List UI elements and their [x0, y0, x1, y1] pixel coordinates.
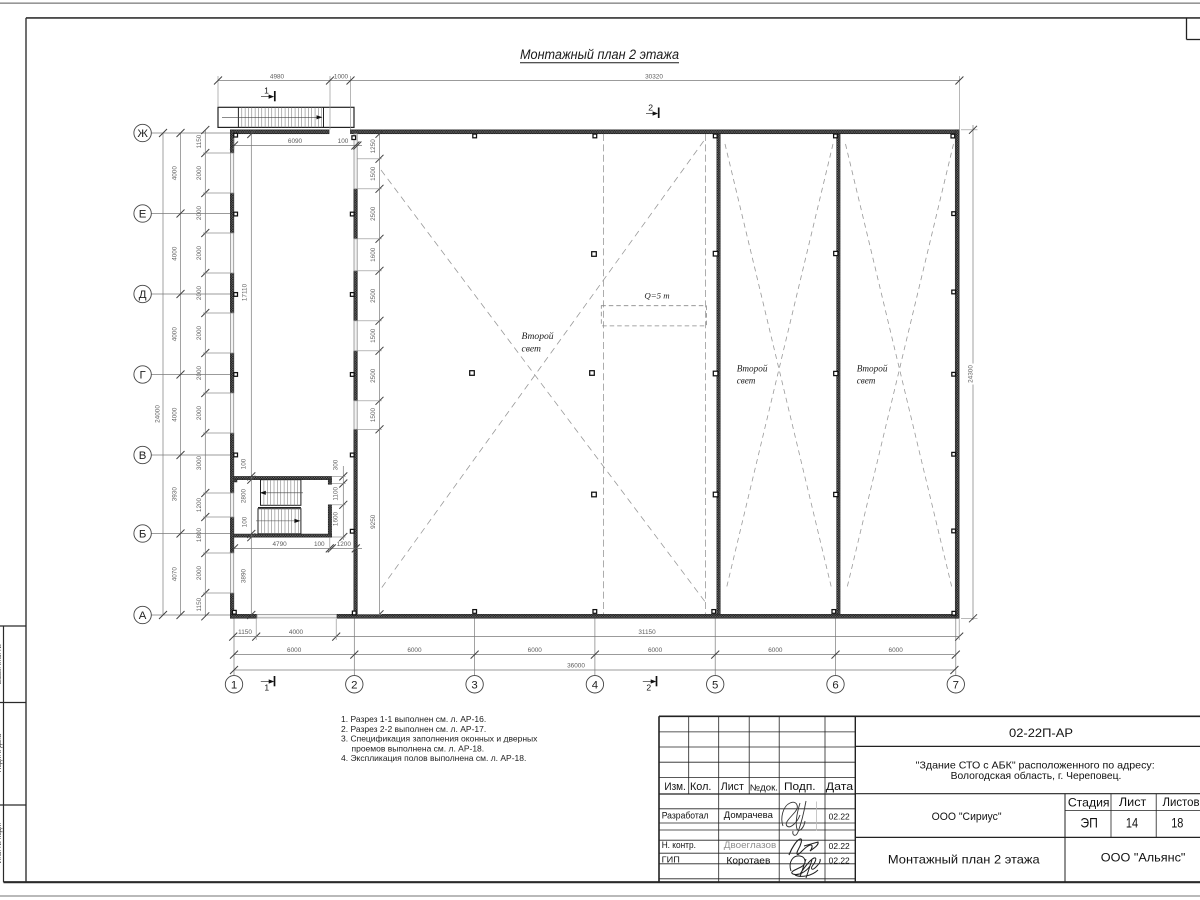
svg-text:3930: 3930	[172, 487, 179, 502]
svg-text:Взам. инв. №: Взам. инв. №	[0, 644, 3, 684]
svg-text:2500: 2500	[370, 288, 377, 303]
svg-text:2000: 2000	[196, 365, 203, 380]
svg-text:100: 100	[241, 458, 248, 469]
svg-text:Вологодская область, г. Черепо: Вологодская область, г. Череповец.	[951, 770, 1122, 782]
svg-text:Е: Е	[139, 209, 147, 221]
svg-text:5: 5	[712, 679, 718, 691]
svg-text:4000: 4000	[172, 407, 179, 422]
svg-text:Лист: Лист	[1119, 795, 1147, 809]
svg-text:02.22: 02.22	[829, 842, 851, 851]
svg-text:Листов: Листов	[1163, 795, 1200, 809]
svg-text:Н. контр.: Н. контр.	[662, 840, 696, 850]
svg-text:Монтажный план 2 этажа: Монтажный план 2 этажа	[888, 853, 1040, 867]
svg-text:Монтажный план 2 этажа: Монтажный план 2 этажа	[520, 47, 679, 62]
svg-text:6000: 6000	[407, 647, 422, 654]
svg-text:Г: Г	[140, 370, 146, 382]
svg-text:4000: 4000	[172, 166, 179, 181]
svg-text:1. Разрез 1-1 выполнен см. л.: 1. Разрез 1-1 выполнен см. л. АР-16.	[341, 714, 486, 724]
svg-text:Кол.: Кол.	[690, 781, 711, 793]
svg-text:Изм.: Изм.	[664, 781, 685, 793]
svg-text:02.22: 02.22	[829, 856, 851, 865]
svg-text:1100: 1100	[333, 486, 340, 500]
svg-text:2: 2	[648, 103, 653, 113]
svg-text:100: 100	[338, 138, 349, 145]
svg-text:Второй: Второй	[857, 363, 888, 373]
svg-text:свет: свет	[522, 343, 542, 354]
svg-text:24000: 24000	[155, 405, 162, 423]
svg-text:2000: 2000	[196, 325, 203, 340]
svg-text:Домрачева: Домрачева	[724, 810, 774, 820]
svg-text:9250: 9250	[370, 514, 377, 529]
svg-text:4000: 4000	[172, 327, 179, 342]
svg-text:ЭП: ЭП	[1080, 815, 1098, 830]
svg-text:1600: 1600	[370, 247, 377, 262]
svg-text:Ж: Ж	[137, 128, 148, 140]
svg-text:6: 6	[832, 679, 838, 691]
svg-text:1150: 1150	[196, 597, 203, 611]
svg-text:2500: 2500	[370, 206, 377, 221]
svg-text:Б: Б	[139, 529, 146, 541]
svg-text:6000: 6000	[889, 647, 904, 654]
svg-text:ГИП: ГИП	[662, 856, 680, 865]
svg-text:31150: 31150	[638, 629, 656, 636]
svg-text:1: 1	[264, 86, 269, 96]
svg-text:Двоеглазов: Двоеглазов	[724, 840, 776, 850]
svg-text:2: 2	[646, 682, 651, 692]
svg-text:1500: 1500	[370, 407, 377, 422]
svg-text:1500: 1500	[370, 328, 377, 343]
svg-text:36000: 36000	[567, 662, 585, 669]
svg-text:4000: 4000	[172, 246, 179, 261]
svg-text:1500: 1500	[370, 166, 377, 181]
svg-text:свет: свет	[857, 375, 876, 385]
svg-text:2500: 2500	[370, 368, 377, 383]
svg-text:6000: 6000	[648, 647, 663, 654]
svg-text:2. Разрез 2-2 выполнен см. л.: 2. Разрез 2-2 выполнен см. л. АР-17.	[341, 724, 486, 734]
svg-text:30320: 30320	[645, 73, 663, 80]
svg-text:4. Экспликация полов выполнена: 4. Экспликация полов выполнена см. л. АР…	[341, 753, 526, 763]
svg-text:6000: 6000	[768, 647, 783, 654]
svg-text:2000: 2000	[196, 285, 203, 300]
svg-text:Второй: Второй	[737, 363, 768, 373]
svg-text:2000: 2000	[196, 405, 203, 420]
svg-text:14: 14	[1126, 815, 1139, 830]
svg-text:7: 7	[953, 679, 959, 691]
svg-text:2800: 2800	[241, 488, 248, 503]
svg-text:Подп. и дата: Подп. и дата	[0, 733, 3, 772]
svg-text:1200: 1200	[196, 497, 203, 512]
svg-text:В: В	[139, 450, 147, 462]
svg-text:3890: 3890	[241, 568, 248, 583]
svg-text:1: 1	[264, 682, 269, 692]
svg-text:Стадия: Стадия	[1068, 795, 1110, 809]
svg-text:4980: 4980	[270, 73, 285, 80]
svg-text:4: 4	[592, 679, 598, 691]
svg-text:Дата: Дата	[826, 781, 854, 793]
svg-text:ООО "Сириус": ООО "Сириус"	[932, 811, 1002, 823]
svg-text:100: 100	[241, 516, 248, 527]
svg-text:1150: 1150	[238, 629, 252, 636]
svg-text:6000: 6000	[528, 647, 543, 654]
svg-text:1250: 1250	[370, 139, 377, 154]
svg-text:Коротаев: Коротаев	[726, 855, 770, 865]
svg-text:17110: 17110	[241, 283, 248, 301]
svg-text:4000: 4000	[289, 629, 304, 636]
svg-text:Разработал: Разработал	[662, 811, 709, 821]
svg-text:3000: 3000	[196, 455, 203, 470]
svg-text:свет: свет	[737, 375, 756, 385]
svg-text:2000: 2000	[196, 165, 203, 180]
svg-text:№док.: №док.	[750, 782, 778, 792]
svg-text:300: 300	[333, 459, 340, 470]
svg-text:2000: 2000	[196, 245, 203, 260]
svg-text:А: А	[139, 610, 147, 622]
svg-text:1800: 1800	[196, 527, 203, 542]
svg-text:1150: 1150	[196, 134, 203, 148]
svg-text:02-22П-АР: 02-22П-АР	[1009, 726, 1073, 740]
svg-text:100: 100	[314, 541, 325, 548]
svg-text:Инв. № подл.: Инв. № подл.	[0, 823, 3, 864]
svg-text:2000: 2000	[196, 205, 203, 220]
svg-text:проемов выполнена см. л. АР-18: проемов выполнена см. л. АР-18.	[352, 743, 485, 753]
svg-text:1600: 1600	[333, 511, 340, 526]
svg-text:2000: 2000	[196, 565, 203, 580]
svg-text:6090: 6090	[288, 138, 303, 145]
svg-text:24300: 24300	[968, 365, 975, 383]
svg-text:1: 1	[231, 679, 237, 691]
svg-text:18: 18	[1171, 815, 1183, 830]
svg-text:ООО "Альянс": ООО "Альянс"	[1101, 851, 1186, 865]
svg-text:3. Спецификация заполнения око: 3. Спецификация заполнения оконных и две…	[341, 734, 538, 744]
svg-text:1000: 1000	[334, 73, 349, 80]
svg-text:Лист: Лист	[721, 781, 745, 793]
svg-text:"Здание СТО с АБК" расположенн: "Здание СТО с АБК" расположенного по адр…	[916, 761, 1155, 772]
svg-text:6000: 6000	[287, 647, 302, 654]
svg-text:3: 3	[471, 679, 477, 691]
svg-text:4790: 4790	[272, 541, 287, 548]
svg-text:Q=5 т: Q=5 т	[644, 290, 669, 300]
svg-text:Второй: Второй	[522, 331, 554, 342]
svg-text:2: 2	[351, 679, 357, 691]
svg-text:Д: Д	[139, 289, 147, 301]
svg-text:Подп.: Подп.	[784, 781, 816, 793]
svg-text:1200: 1200	[337, 541, 352, 548]
svg-text:02.22: 02.22	[829, 813, 851, 822]
svg-text:4070: 4070	[172, 567, 179, 582]
